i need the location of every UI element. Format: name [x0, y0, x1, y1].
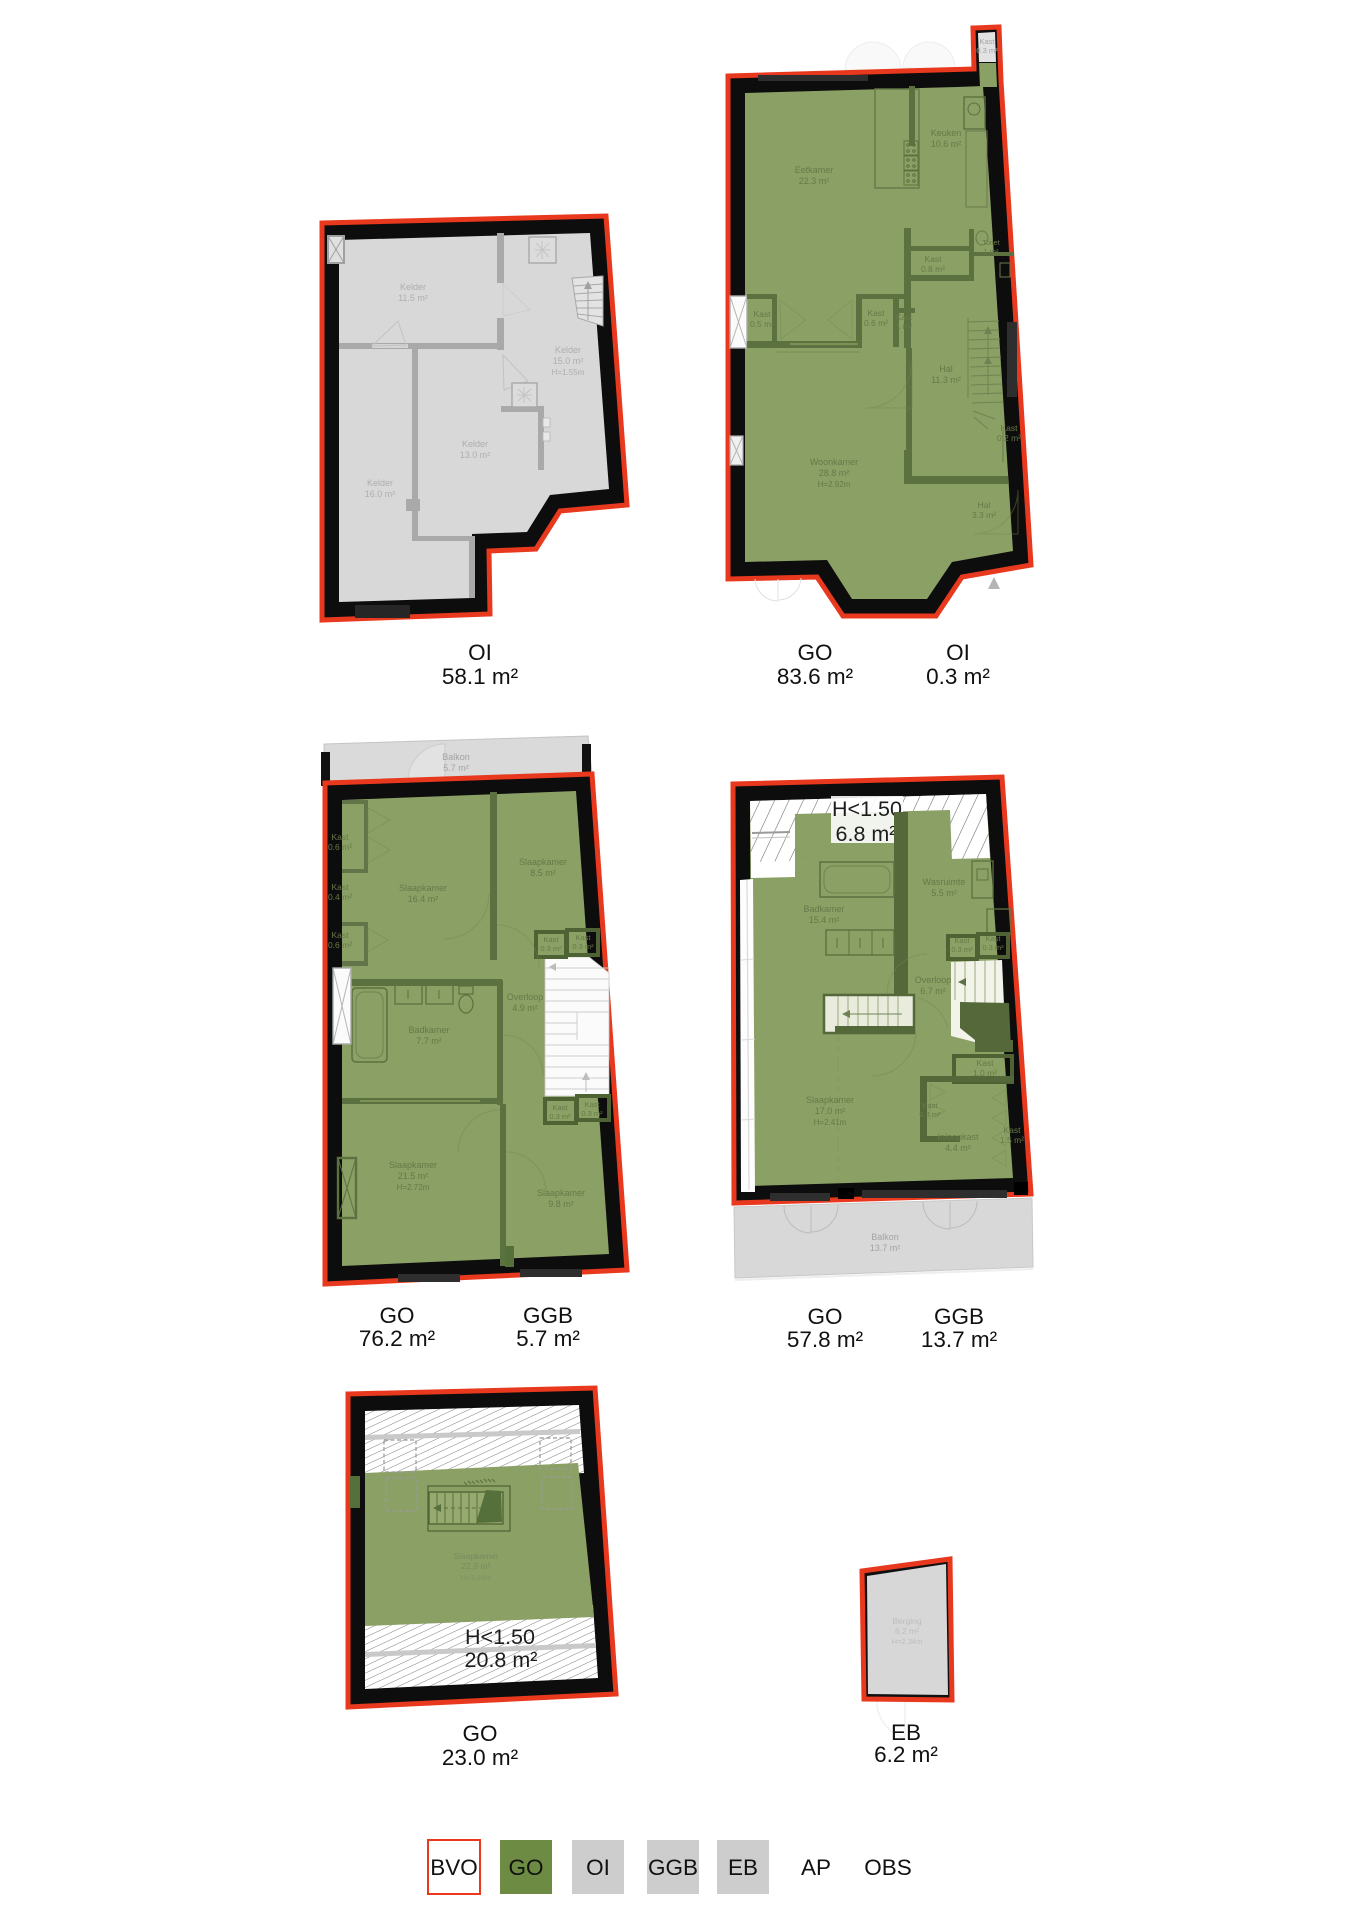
svg-text:Slaapkamer: Slaapkamer: [806, 1095, 854, 1105]
svg-text:Hal: Hal: [978, 500, 991, 510]
svg-text:13.7 m²: 13.7 m²: [870, 1243, 901, 1253]
svg-text:6.2 m²: 6.2 m²: [895, 1626, 919, 1636]
svg-text:BVO: BVO: [430, 1855, 478, 1880]
svg-text:15.4 m²: 15.4 m²: [809, 915, 840, 925]
svg-text:Berging: Berging: [892, 1616, 922, 1626]
svg-text:0.2 m²: 0.2 m²: [997, 433, 1021, 443]
svg-text:Kelder: Kelder: [367, 478, 393, 488]
svg-text:Overloop: Overloop: [915, 975, 952, 985]
svg-text:Slaapkamer: Slaapkamer: [399, 883, 447, 893]
svg-text:H=2.41m: H=2.41m: [814, 1118, 847, 1127]
svg-text:Hal: Hal: [939, 364, 953, 374]
svg-text:17.0 m²: 17.0 m²: [815, 1106, 846, 1116]
svg-text:0.6 m²: 0.6 m²: [864, 318, 888, 328]
svg-text:GO: GO: [797, 640, 832, 665]
svg-text:Kast: Kast: [552, 1103, 568, 1112]
svg-text:16.4 m²: 16.4 m²: [408, 894, 439, 904]
svg-text:H=2.92m: H=2.92m: [818, 480, 851, 489]
svg-text:4.4 m²: 4.4 m²: [945, 1143, 971, 1153]
svg-text:Kast: Kast: [1000, 423, 1018, 433]
svg-text:Balkon: Balkon: [871, 1232, 899, 1242]
svg-text:0.3 m²: 0.3 m²: [540, 944, 562, 953]
svg-text:1.0 m²: 1.0 m²: [973, 1068, 997, 1078]
svg-text:5.5 m²: 5.5 m²: [931, 888, 957, 898]
svg-text:H=3.16m: H=3.16m: [461, 1573, 492, 1582]
svg-text:GGB: GGB: [648, 1855, 698, 1880]
svg-text:Woonkamer: Woonkamer: [810, 457, 858, 467]
svg-text:5.7 m²: 5.7 m²: [443, 763, 469, 773]
svg-text:Balkon: Balkon: [442, 752, 470, 762]
svg-text:1 m²: 1 m²: [984, 247, 1000, 256]
svg-text:Kast: Kast: [985, 934, 1001, 943]
svg-text:5.7 m²: 5.7 m²: [516, 1326, 580, 1351]
svg-text:9.8 m²: 9.8 m²: [548, 1199, 574, 1209]
svg-text:H=2.72m: H=2.72m: [397, 1183, 430, 1192]
svg-text:0.3 m²: 0.3 m²: [919, 1110, 941, 1119]
svg-text:22.3 m²: 22.3 m²: [799, 176, 830, 186]
svg-text:H=2.34m: H=2.34m: [892, 1637, 923, 1646]
svg-text:Kast: Kast: [924, 254, 942, 264]
svg-text:Kast: Kast: [543, 935, 559, 944]
svg-text:20.8 m²: 20.8 m²: [465, 1648, 538, 1672]
svg-text:Kast: Kast: [331, 930, 349, 940]
svg-text:0.5 m²: 0.5 m²: [750, 319, 774, 329]
svg-text:57.8 m²: 57.8 m²: [787, 1327, 864, 1352]
svg-text:Inloopkast: Inloopkast: [937, 1132, 979, 1142]
svg-text:EB: EB: [728, 1855, 758, 1880]
svg-text:Slaapkamer: Slaapkamer: [453, 1551, 499, 1561]
svg-text:0.6 m²: 0.6 m²: [328, 842, 352, 852]
svg-text:Kast: Kast: [1003, 1125, 1021, 1135]
svg-text:GGB: GGB: [934, 1304, 984, 1329]
svg-text:Kast: Kast: [922, 1101, 938, 1110]
svg-text:Overloop: Overloop: [507, 992, 544, 1002]
svg-text:GO: GO: [807, 1304, 842, 1329]
svg-text:Slaapkamer: Slaapkamer: [389, 1160, 437, 1170]
svg-text:0.3 m²: 0.3 m²: [951, 945, 973, 954]
svg-text:10.6 m²: 10.6 m²: [931, 139, 962, 149]
svg-text:Kast: Kast: [575, 933, 591, 942]
svg-text:1 m²: 1 m²: [896, 322, 912, 331]
svg-text:0.6 m²: 0.6 m²: [328, 940, 352, 950]
svg-text:4.9 m²: 4.9 m²: [512, 1003, 538, 1013]
svg-text:16.0 m²: 16.0 m²: [365, 489, 396, 499]
svg-text:Kast: Kast: [954, 936, 970, 945]
svg-text:76.2 m²: 76.2 m²: [359, 1326, 436, 1351]
svg-text:Kast: Kast: [331, 832, 349, 842]
svg-text:Kast: Kast: [753, 309, 771, 319]
svg-text:Toilet: Toilet: [982, 238, 1000, 247]
svg-text:OI: OI: [468, 640, 492, 665]
svg-text:11.5 m²: 11.5 m²: [398, 293, 428, 303]
svg-text:0.3 m²: 0.3 m²: [982, 943, 1004, 952]
svg-text:Badkamer: Badkamer: [408, 1025, 449, 1035]
svg-text:6.8 m²: 6.8 m²: [836, 822, 897, 846]
svg-text:8.5 m²: 8.5 m²: [530, 868, 556, 878]
svg-text:0.4 m²: 0.4 m²: [328, 892, 352, 902]
svg-text:Kast: Kast: [896, 313, 913, 322]
svg-text:0.3 m²: 0.3 m²: [572, 942, 594, 951]
svg-text:Slaapkamer: Slaapkamer: [519, 857, 567, 867]
svg-text:Kast: Kast: [331, 882, 349, 892]
svg-text:Kelder: Kelder: [555, 345, 581, 355]
svg-text:Kast: Kast: [976, 1058, 994, 1068]
svg-text:23.0 m²: 23.0 m²: [442, 1745, 519, 1770]
svg-text:13.7 m²: 13.7 m²: [921, 1327, 998, 1352]
svg-text:22.9 m²: 22.9 m²: [462, 1561, 491, 1571]
svg-text:Kast: Kast: [584, 1100, 600, 1109]
svg-text:H<1.50: H<1.50: [465, 1625, 535, 1649]
svg-text:6.2 m²: 6.2 m²: [874, 1742, 938, 1767]
svg-text:6.7 m²: 6.7 m²: [920, 986, 946, 996]
svg-text:7.7 m²: 7.7 m²: [416, 1036, 442, 1046]
svg-text:GO: GO: [379, 1303, 414, 1328]
svg-text:OI: OI: [946, 640, 970, 665]
svg-text:Eetkamer: Eetkamer: [795, 165, 834, 175]
svg-text:28.8 m²: 28.8 m²: [819, 468, 850, 478]
svg-text:3.3 m²: 3.3 m²: [972, 510, 996, 520]
svg-text:Wasruimte: Wasruimte: [923, 877, 966, 887]
svg-text:21.5 m²: 21.5 m²: [398, 1171, 429, 1181]
svg-text:H<1.50: H<1.50: [832, 797, 902, 821]
svg-text:0.8 m²: 0.8 m²: [921, 264, 945, 274]
svg-text:Slaapkamer: Slaapkamer: [537, 1188, 585, 1198]
svg-text:58.1 m²: 58.1 m²: [442, 664, 519, 689]
svg-text:Kast: Kast: [867, 308, 885, 318]
svg-text:GO: GO: [462, 1721, 497, 1746]
svg-text:0.3 m²: 0.3 m²: [976, 46, 998, 55]
svg-text:1.5 m²: 1.5 m²: [1000, 1135, 1024, 1145]
svg-text:OBS: OBS: [864, 1855, 912, 1880]
svg-text:Kelder: Kelder: [400, 282, 426, 292]
svg-text:OI: OI: [586, 1855, 610, 1880]
svg-text:H=1.55m: H=1.55m: [552, 368, 585, 377]
svg-text:AP: AP: [801, 1855, 831, 1880]
svg-text:15.0 m²: 15.0 m²: [553, 356, 584, 366]
svg-text:13.0 m²: 13.0 m²: [460, 450, 491, 460]
svg-text:Kast: Kast: [979, 37, 995, 46]
svg-text:Kelder: Kelder: [462, 439, 488, 449]
svg-text:0.3 m²: 0.3 m²: [581, 1109, 603, 1118]
svg-text:0.3 m²: 0.3 m²: [549, 1112, 571, 1121]
svg-text:GO: GO: [508, 1855, 543, 1880]
svg-text:Keuken: Keuken: [931, 128, 962, 138]
svg-text:11.3 m²: 11.3 m²: [931, 375, 961, 385]
svg-text:GGB: GGB: [523, 1303, 573, 1328]
svg-text:Badkamer: Badkamer: [803, 904, 844, 914]
svg-text:83.6 m²: 83.6 m²: [777, 664, 854, 689]
svg-text:0.3 m²: 0.3 m²: [926, 664, 990, 689]
